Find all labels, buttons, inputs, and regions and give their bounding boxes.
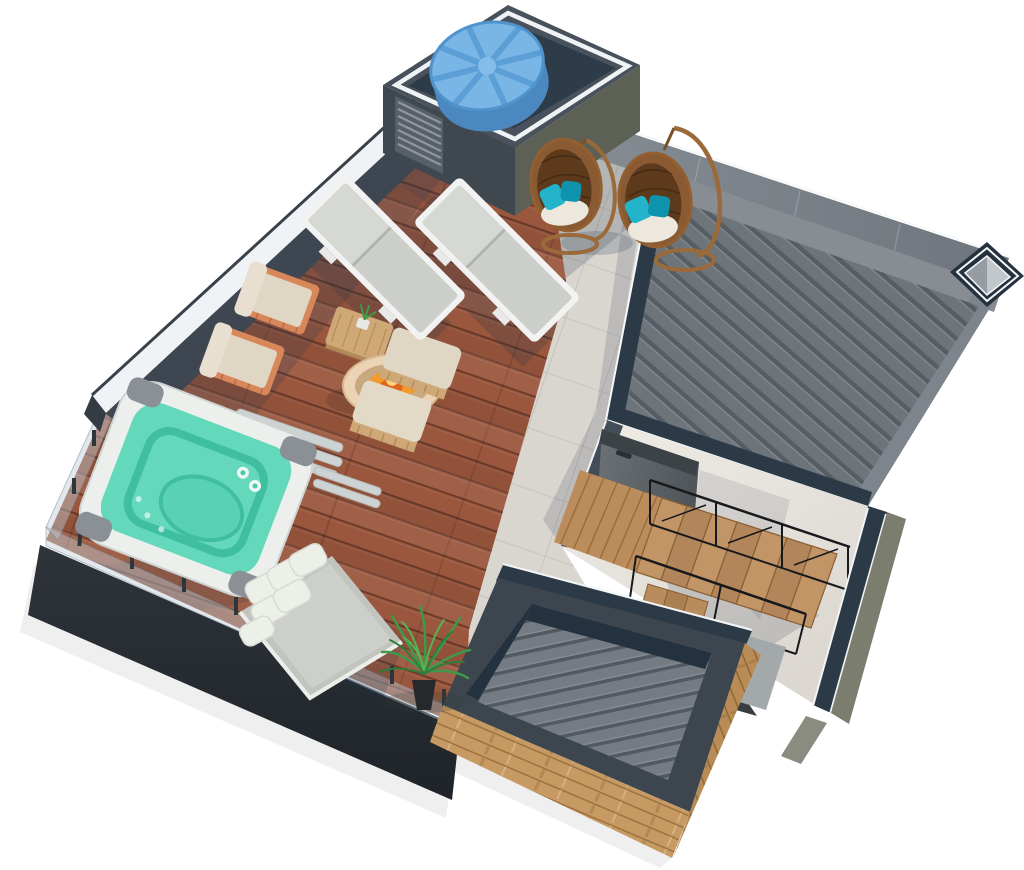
rooftop-plan-stage	[0, 0, 1024, 870]
rooftop-plan-render	[0, 0, 1024, 870]
